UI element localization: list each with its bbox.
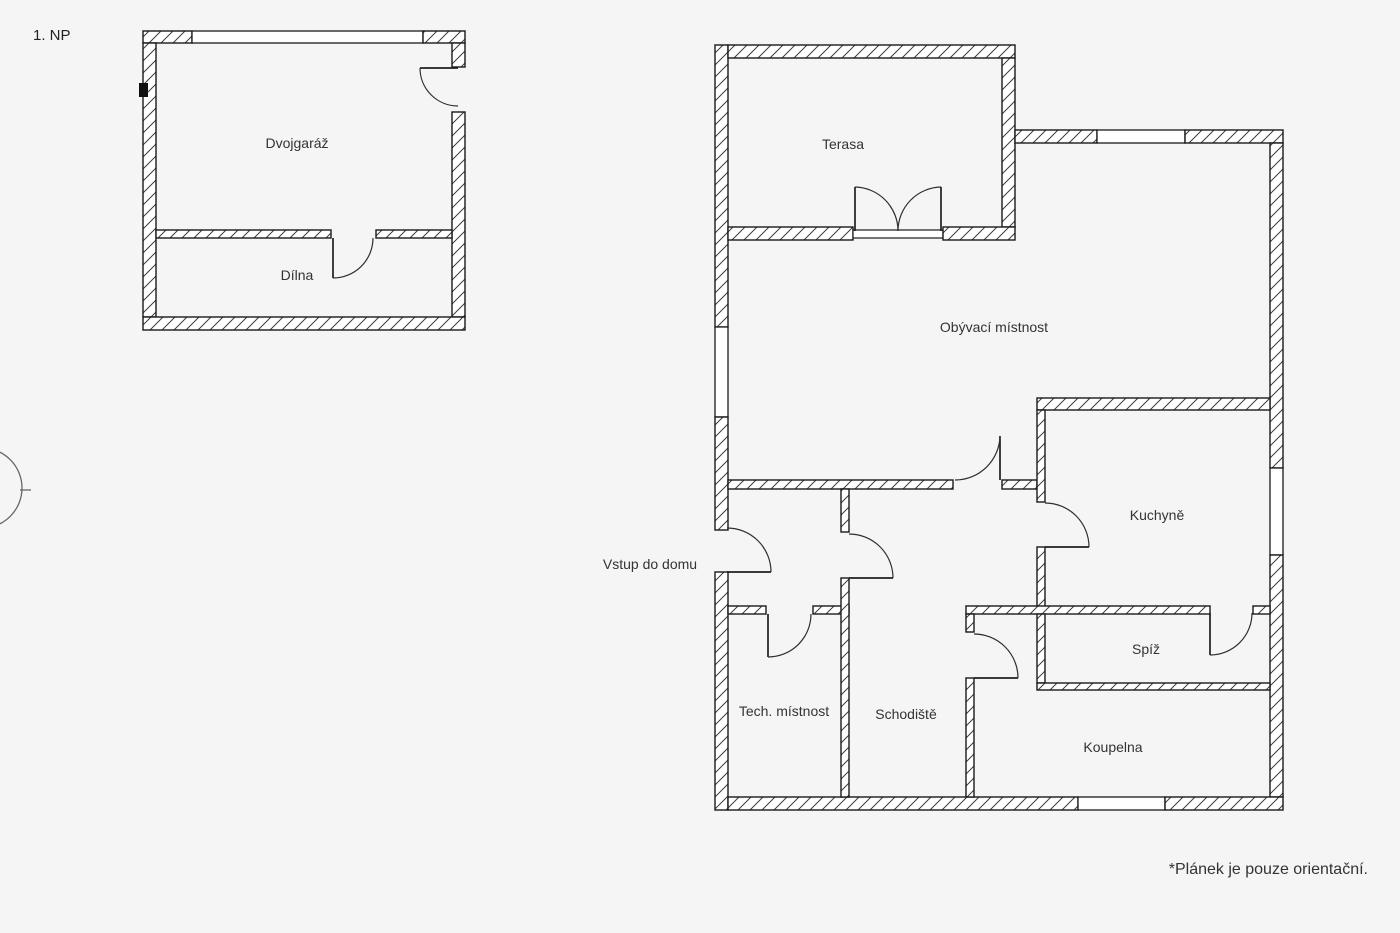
compass-icon [0,448,31,528]
wall-segment [715,417,728,530]
room-label-koupelna: Koupelna [1083,739,1142,755]
floor-plan-page: 1. NP Dvojgaráž Dílna Terasa Obývací mís… [0,0,1400,933]
bathroom-door [974,634,1018,678]
floor-label: 1. NP [33,27,71,44]
disclaimer-note: *Plánek je pouze orientační. [1169,861,1368,878]
room-label-obyvaci-mistnost: Obývací místnost [940,319,1048,335]
garage-door-opening [192,31,423,43]
wall-segment [1270,143,1283,468]
wall-segment [1037,614,1045,683]
labels: 1. NP Dvojgaráž Dílna Terasa Obývací mís… [33,27,1368,878]
wall-segment [966,606,1210,614]
wall-segment [728,45,1015,58]
wall-segment [728,227,853,240]
garage-block [139,31,465,330]
wall-segment [728,797,1078,810]
wall-segment [841,578,849,797]
room-label-spiz: Spíž [1132,641,1160,657]
terrace-door-sill [853,230,943,238]
entry-door [727,528,771,572]
wall-segment [376,230,452,238]
wall-segment [715,572,728,810]
wall-segment [143,31,192,43]
house-outer-walls [715,45,1283,810]
wall-segment [1037,398,1270,410]
wall-segment [1037,547,1045,608]
wall-segment [1015,130,1097,143]
wall-segment [1002,58,1015,227]
window [715,327,728,417]
wall-segment [728,480,953,489]
room-label-terasa: Terasa [822,136,864,152]
door-symbols [727,187,1252,678]
wall-segment [452,43,465,67]
wall-segment [1270,555,1283,797]
window [1270,468,1283,555]
kitchen-door [1045,503,1089,547]
living-room-door [955,436,1000,480]
wall-segment [452,112,465,317]
wall-segment [715,45,728,327]
room-label-dilna: Dílna [281,267,314,283]
wall-segment [728,606,766,614]
window [1097,130,1185,143]
wall-segment [1002,480,1037,489]
room-label-kuchyne: Kuchyně [1130,507,1185,523]
wall-segment [1165,797,1283,810]
wall-segment [966,678,974,797]
wall-segment [156,230,331,238]
wall-segment [1037,410,1045,502]
staircase-door [849,534,893,578]
wall-segment [943,227,1015,240]
wall-segment [143,317,465,330]
house-interior-walls [728,398,1270,797]
garage-side-door [420,68,458,106]
entrance-label: Vstup do domu [603,556,697,572]
terrace-french-door [855,187,941,231]
room-label-schodiste: Schodiště [875,706,937,722]
wall-segment [1037,683,1270,690]
wall-segment [1185,130,1283,143]
room-label-dvojgaraz: Dvojgaráž [265,135,328,151]
wall-segment [966,614,974,632]
room-label-tech-mistnost: Tech. místnost [739,703,829,719]
window [1078,797,1165,810]
tech-room-door [768,614,811,657]
wall-segment [841,489,849,532]
wall-segment [1253,606,1270,614]
floor-plan-canvas: 1. NP Dvojgaráž Dílna Terasa Obývací mís… [0,0,1400,933]
pantry-door [1210,613,1252,655]
wall-segment [423,31,465,43]
workshop-door [333,238,373,278]
wall-break-mark [139,83,148,97]
